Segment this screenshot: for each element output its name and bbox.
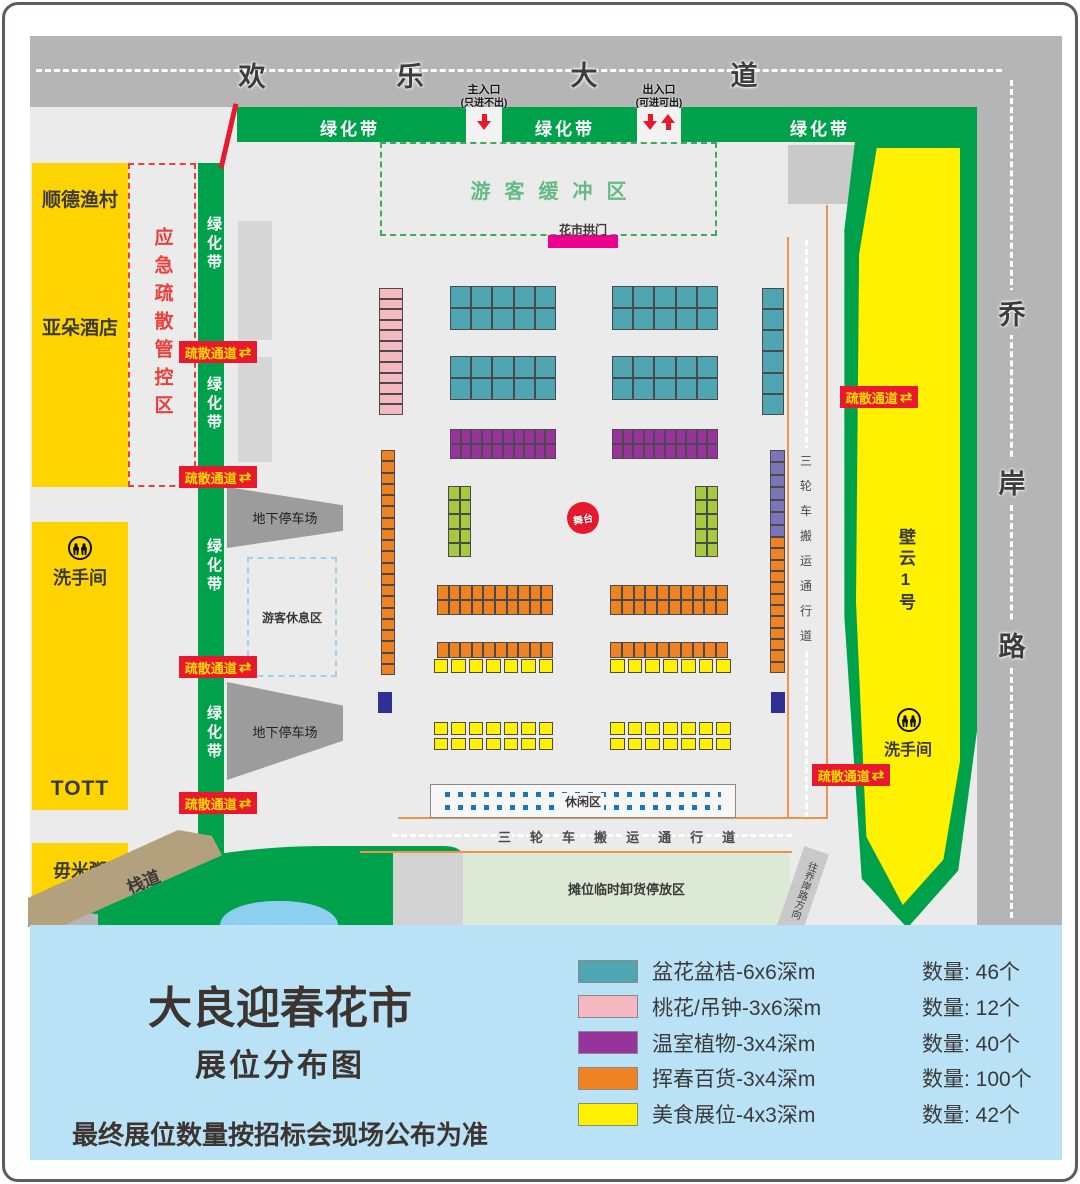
booth-cell bbox=[521, 659, 535, 673]
booth-block-potted bbox=[450, 286, 556, 330]
booth-cell bbox=[539, 722, 553, 735]
booth-cell bbox=[451, 659, 465, 673]
booth-cell bbox=[521, 722, 535, 735]
booth-cell bbox=[645, 722, 660, 735]
booth-cell bbox=[541, 585, 553, 600]
booth-cell bbox=[654, 308, 675, 330]
booth-cell bbox=[450, 286, 471, 308]
booth-cell bbox=[495, 585, 507, 600]
booth-cell bbox=[381, 529, 395, 540]
booth-cell bbox=[379, 351, 403, 362]
booth-cell bbox=[612, 308, 633, 330]
building-restroom-tott: 洗手间 TOTT bbox=[32, 522, 128, 810]
stage: 舞台 bbox=[567, 502, 599, 534]
booth-block-sundries bbox=[437, 585, 553, 615]
booth-cell bbox=[628, 659, 643, 673]
lane-label-char: 搬 bbox=[593, 827, 608, 846]
booth-cell bbox=[503, 429, 514, 444]
legend-item-qty: 数量: 12个 bbox=[922, 992, 1020, 1022]
booth-cell bbox=[448, 543, 460, 557]
booth-cell bbox=[434, 659, 448, 673]
booth-cell bbox=[379, 373, 403, 384]
booth-cell bbox=[379, 309, 403, 320]
booth-cell bbox=[707, 514, 719, 528]
booth-cell bbox=[695, 514, 707, 528]
booth-cell bbox=[535, 444, 546, 459]
legend-item: 美食展位-4x3深m数量: 42个 bbox=[578, 1102, 1048, 1126]
exit-up-arrow-icon bbox=[661, 114, 675, 130]
booth-cell bbox=[448, 486, 460, 500]
booth-cell bbox=[762, 351, 784, 372]
booth-block-greenhouse bbox=[450, 429, 556, 459]
booth-block-lime bbox=[695, 486, 718, 557]
parking-2-label: 地下停车场 bbox=[252, 722, 317, 741]
booth-cell bbox=[381, 461, 395, 472]
booth-cell bbox=[610, 642, 622, 658]
exit-entrance-title: 出入口 bbox=[616, 84, 702, 98]
booth-cell bbox=[460, 500, 472, 514]
booth-cell bbox=[504, 738, 518, 751]
booth-cell bbox=[707, 429, 718, 444]
booth-cell bbox=[504, 659, 518, 673]
booth-cell bbox=[381, 551, 395, 562]
booth-cell bbox=[503, 444, 514, 459]
booth-cell bbox=[681, 585, 693, 600]
booth-cell bbox=[681, 659, 696, 673]
booth-cell bbox=[657, 585, 669, 600]
building-label-shunde: 顺德渔村 bbox=[32, 185, 128, 212]
double-arrow-icon: ⇄ bbox=[900, 390, 913, 405]
booth-cell bbox=[460, 642, 472, 658]
booth-cell bbox=[633, 444, 644, 459]
legend-swatch bbox=[578, 960, 638, 983]
booth-cell bbox=[669, 642, 681, 658]
booth-cell bbox=[654, 378, 675, 400]
lane-label-char: 行 bbox=[689, 827, 704, 846]
booth-cell bbox=[693, 585, 705, 600]
green-block-bottom bbox=[360, 852, 393, 925]
booth-cell bbox=[669, 585, 681, 600]
booth-cell bbox=[686, 444, 697, 459]
booth-cell bbox=[654, 429, 665, 444]
buffer-zone-label: 游客缓冲区 bbox=[457, 175, 641, 204]
booth-cell bbox=[492, 429, 503, 444]
legend-item-label: 挥春百货-3x4深m bbox=[652, 1063, 922, 1093]
booth-cell bbox=[770, 628, 785, 639]
booth-cell bbox=[469, 659, 483, 673]
booth-cell bbox=[770, 662, 785, 673]
booth-cell bbox=[704, 585, 716, 600]
booth-cell bbox=[610, 600, 622, 615]
booth-cell bbox=[686, 429, 697, 444]
booth-cell bbox=[697, 308, 718, 330]
booth-cell bbox=[451, 738, 465, 751]
booth-cell bbox=[471, 378, 492, 400]
booth-cell bbox=[472, 585, 484, 600]
booth-cell bbox=[492, 308, 513, 330]
booth-cell bbox=[495, 642, 507, 658]
booth-block-sundries bbox=[610, 585, 728, 615]
exit-down-arrow-icon bbox=[643, 114, 657, 130]
building-label-yaduo: 亚朵酒店 bbox=[32, 313, 128, 340]
booth-block-food bbox=[610, 659, 731, 673]
booth-cell bbox=[657, 600, 669, 615]
booth-cell bbox=[460, 514, 472, 528]
booth-cell bbox=[770, 560, 785, 571]
booth-block-food bbox=[434, 722, 553, 750]
booth-cell bbox=[471, 308, 492, 330]
booth-cell bbox=[434, 722, 448, 735]
double-arrow-icon: ⇄ bbox=[239, 345, 252, 360]
booth-cell bbox=[514, 308, 535, 330]
booth-cell bbox=[379, 404, 403, 415]
booth-cell bbox=[770, 537, 785, 548]
booth-cell bbox=[654, 286, 675, 308]
booth-cell bbox=[707, 543, 719, 557]
booth-cell bbox=[381, 450, 395, 461]
booth-cell bbox=[681, 722, 696, 735]
legend-item-label: 桃花/吊钟-3x6深m bbox=[652, 992, 922, 1022]
booth-block-peach bbox=[379, 288, 403, 415]
visitor-rest-label: 游客休息区 bbox=[262, 609, 322, 626]
booth-cell bbox=[492, 286, 513, 308]
booth-cell bbox=[460, 486, 472, 500]
booth-cell bbox=[610, 585, 622, 600]
booth-cell bbox=[770, 548, 785, 559]
booth-cell bbox=[504, 722, 518, 735]
lane-label-char: 搬 bbox=[796, 523, 816, 548]
booth-cell bbox=[770, 639, 785, 650]
booth-cell bbox=[539, 738, 553, 751]
booth-cell bbox=[381, 630, 395, 641]
arch-label: 花市拱门 bbox=[538, 221, 628, 238]
booth-cell bbox=[612, 378, 633, 400]
booth-cell bbox=[460, 585, 472, 600]
lane-label-char: 车 bbox=[796, 498, 816, 523]
booth-block-potted bbox=[612, 286, 718, 330]
booth-cell bbox=[663, 659, 678, 673]
double-arrow-icon: ⇄ bbox=[872, 768, 885, 783]
booth-cell bbox=[448, 514, 460, 528]
legend-item: 挥春百货-3x4深m数量: 100个 bbox=[578, 1066, 1048, 1090]
orange-line-v1 bbox=[787, 237, 789, 818]
booth-cell bbox=[645, 642, 657, 658]
booth-cell bbox=[676, 429, 687, 444]
evacuation-badge-label: 疏散通道 bbox=[185, 658, 237, 677]
booth-cell bbox=[514, 356, 535, 378]
booth-cell bbox=[545, 444, 556, 459]
lane-label-char: 道 bbox=[796, 623, 816, 648]
exit-entrance-label: 出入口 (可进可出) bbox=[616, 84, 702, 110]
booth-cell bbox=[622, 642, 634, 658]
booth-cell bbox=[610, 659, 625, 673]
booth-cell bbox=[381, 540, 395, 551]
booth-cell bbox=[450, 444, 461, 459]
booth-cell bbox=[379, 362, 403, 373]
booth-cell bbox=[450, 308, 471, 330]
booth-cell bbox=[770, 525, 785, 537]
orange-line-h2 bbox=[360, 851, 792, 853]
booth-cell bbox=[545, 429, 556, 444]
booth-cell bbox=[681, 600, 693, 615]
booth-cell bbox=[541, 600, 553, 615]
lane-label-char: 三 bbox=[796, 448, 816, 473]
legend-swatch bbox=[578, 995, 638, 1018]
evacuation-badge-label: 疏散通道 bbox=[185, 343, 237, 362]
booth-cell bbox=[612, 444, 623, 459]
booth-cell bbox=[449, 600, 461, 615]
booth-cell bbox=[482, 444, 493, 459]
booth-cell bbox=[762, 288, 784, 309]
building-shunde-yacun: 顺德渔村 亚朵酒店 bbox=[32, 163, 128, 487]
booth-cell bbox=[697, 356, 718, 378]
booth-cell bbox=[716, 659, 731, 673]
booth-cell bbox=[381, 506, 395, 517]
booth-cell bbox=[665, 429, 676, 444]
booth-block-lime bbox=[448, 486, 471, 557]
booth-cell bbox=[379, 341, 403, 352]
booth-cell bbox=[697, 429, 708, 444]
booth-cell bbox=[676, 356, 697, 378]
booth-cell bbox=[381, 518, 395, 529]
legend-item-qty: 数量: 46个 bbox=[922, 956, 1020, 986]
booth-block-sundries bbox=[770, 537, 785, 673]
gray-building-2 bbox=[238, 357, 272, 462]
booth-cell bbox=[469, 738, 483, 751]
booth-cell bbox=[695, 543, 707, 557]
booth-cell bbox=[450, 356, 471, 378]
booth-cell bbox=[507, 600, 519, 615]
booth-cell bbox=[693, 642, 705, 658]
booth-cell bbox=[524, 429, 535, 444]
booth-cell bbox=[507, 642, 519, 658]
booth-block-potted bbox=[762, 288, 784, 415]
booth-cell bbox=[471, 286, 492, 308]
restroom-icon-right bbox=[897, 708, 921, 732]
booth-cell bbox=[530, 585, 542, 600]
booth-cell bbox=[695, 529, 707, 543]
booth-cell bbox=[695, 486, 707, 500]
orange-line-v2 bbox=[826, 205, 828, 818]
booth-cell bbox=[381, 641, 395, 652]
booth-cell bbox=[707, 529, 719, 543]
booth-cell bbox=[612, 429, 623, 444]
lane-label-char: 运 bbox=[625, 827, 640, 846]
booth-cell bbox=[612, 356, 633, 378]
legend-title: 大良迎春花市 bbox=[70, 972, 490, 1036]
evacuation-badge-label: 疏散通道 bbox=[818, 766, 870, 785]
booth-cell bbox=[681, 738, 696, 751]
booth-cell bbox=[634, 585, 646, 600]
booth-cell bbox=[762, 309, 784, 330]
booth-cell bbox=[770, 475, 785, 487]
booth-cell bbox=[676, 286, 697, 308]
restroom-label-left: 洗手间 bbox=[32, 564, 128, 590]
green-belt-label-vertical: 绿化带 bbox=[203, 216, 224, 273]
lane-label-char: 三 bbox=[497, 827, 512, 846]
booth-cell bbox=[770, 450, 785, 462]
booth-cell bbox=[518, 600, 530, 615]
exit-entrance-note: (可进可出) bbox=[616, 98, 702, 111]
main-entrance-label: 主入口 (只进不出) bbox=[441, 84, 527, 110]
booth-cell bbox=[524, 444, 535, 459]
lane-label-char: 轮 bbox=[529, 827, 544, 846]
gray-building-1 bbox=[238, 221, 272, 340]
booth-cell bbox=[521, 738, 535, 751]
booth-cell bbox=[514, 429, 525, 444]
booth-cell bbox=[697, 378, 718, 400]
evacuation-badge: 疏散通道⇄ bbox=[179, 341, 257, 363]
road-name-char: 道 bbox=[729, 54, 759, 93]
booth-cell bbox=[654, 356, 675, 378]
green-belt-label: 绿化带 bbox=[310, 115, 390, 140]
booth-cell bbox=[644, 429, 655, 444]
double-arrow-icon: ⇄ bbox=[239, 796, 252, 811]
legend-item-qty: 数量: 42个 bbox=[922, 1099, 1020, 1129]
booth-cell bbox=[530, 600, 542, 615]
booth-cell bbox=[379, 299, 403, 310]
booth-cell bbox=[471, 444, 482, 459]
booth-cell bbox=[634, 642, 646, 658]
legend-item: 桃花/吊钟-3x6深m数量: 12个 bbox=[578, 995, 1048, 1019]
booth-cell bbox=[379, 330, 403, 341]
green-belt-label-vertical: 绿化带 bbox=[203, 538, 224, 595]
booth-cell bbox=[716, 600, 728, 615]
lane-label-char: 轮 bbox=[796, 473, 816, 498]
booth-cell bbox=[623, 444, 634, 459]
booth-cell bbox=[610, 722, 625, 735]
booth-cell bbox=[622, 585, 634, 600]
unload-label: 摊位临时卸货停放区 bbox=[568, 879, 685, 898]
evacuation-badge: 疏散通道⇄ bbox=[179, 792, 257, 814]
booth-cell bbox=[633, 286, 654, 308]
legend-item-label: 美食展位-4x3深m bbox=[652, 1099, 922, 1129]
restroom-label-right: 洗手间 bbox=[868, 736, 948, 760]
booth-cell bbox=[770, 512, 785, 524]
lane-label-char: 通 bbox=[657, 827, 672, 846]
booth-cell bbox=[471, 356, 492, 378]
legend-note: 最终展位数量按招标会现场公布为准 bbox=[70, 1115, 490, 1152]
legend-item: 盆花盆桔-6x6深m数量: 46个 bbox=[578, 959, 1048, 983]
booth-cell bbox=[633, 378, 654, 400]
booth-cell bbox=[535, 429, 546, 444]
main-entrance-title: 主入口 bbox=[441, 84, 527, 98]
evacuation-badge: 疏散通道⇄ bbox=[179, 656, 257, 678]
booth-cell bbox=[460, 543, 472, 557]
lane-label-char: 车 bbox=[561, 827, 576, 846]
booth-cell bbox=[770, 571, 785, 582]
booth-cell bbox=[645, 600, 657, 615]
flower-market-map: 欢乐大道 乔岸路 绿化带绿化带绿化带 主入口 (只进不出) 出入口 (可进可出)… bbox=[0, 0, 1080, 1184]
road-name-char: 路 bbox=[996, 622, 1028, 667]
booth-cell bbox=[495, 600, 507, 615]
booth-cell bbox=[448, 529, 460, 543]
booth-cell bbox=[472, 642, 484, 658]
entrance-down-arrow-icon bbox=[477, 114, 491, 130]
booth-cell bbox=[644, 444, 655, 459]
top-road-centerline bbox=[36, 69, 1002, 72]
booth-cell bbox=[770, 605, 785, 616]
legend-item-label: 温室植物-3x4深m bbox=[652, 1028, 922, 1058]
booth-cell bbox=[434, 738, 448, 751]
road-name-char: 乐 bbox=[395, 55, 425, 94]
booth-cell bbox=[716, 642, 728, 658]
booth-cell bbox=[381, 484, 395, 495]
booth-cell bbox=[657, 642, 669, 658]
booth-cell bbox=[450, 378, 471, 400]
legend-subtitle: 展位分布图 bbox=[70, 1040, 490, 1085]
booth-cell bbox=[633, 356, 654, 378]
green-belt-label-vertical: 绿化带 bbox=[203, 376, 224, 433]
legend-swatch bbox=[578, 1031, 638, 1054]
booth-cell bbox=[518, 642, 530, 658]
booth-cell bbox=[461, 429, 472, 444]
booth-cell bbox=[381, 596, 395, 607]
lane-label-char: 行 bbox=[796, 598, 816, 623]
booth-cell bbox=[663, 722, 678, 735]
road-name-char: 大 bbox=[569, 54, 599, 93]
booth-cell bbox=[622, 600, 634, 615]
booth-cell bbox=[707, 486, 719, 500]
main-entrance-gap bbox=[466, 107, 502, 142]
booth-cell bbox=[448, 500, 460, 514]
booth-cell bbox=[770, 650, 785, 661]
booth-cell bbox=[633, 429, 644, 444]
booth-cell bbox=[654, 444, 665, 459]
booth-cell bbox=[541, 642, 553, 658]
booth-cell bbox=[770, 582, 785, 593]
booth-cell bbox=[514, 286, 535, 308]
booth-cell bbox=[381, 619, 395, 630]
booth-cell bbox=[770, 500, 785, 512]
evacuation-badge: 疏散通道⇄ bbox=[812, 764, 890, 786]
booth-block-sundries bbox=[437, 642, 553, 658]
booth-cell bbox=[492, 444, 503, 459]
booth-cell bbox=[514, 444, 525, 459]
legend-panel: 大良迎春花市 展位分布图 最终展位数量按招标会现场公布为准 盆花盆桔-6x6深m… bbox=[30, 925, 1062, 1160]
navy-marker bbox=[771, 692, 785, 713]
green-belt-label-vertical: 绿化带 bbox=[203, 705, 224, 762]
booth-cell bbox=[704, 642, 716, 658]
booth-cell bbox=[460, 529, 472, 543]
road-name-char: 乔 bbox=[996, 290, 1028, 335]
booth-cell bbox=[699, 722, 714, 735]
booth-cell bbox=[539, 659, 553, 673]
booth-cell bbox=[716, 738, 731, 751]
booth-block-slate bbox=[770, 450, 785, 537]
booth-cell bbox=[379, 320, 403, 331]
booth-cell bbox=[381, 473, 395, 484]
booth-cell bbox=[770, 462, 785, 474]
booth-cell bbox=[437, 642, 449, 658]
lane-label-char: 运 bbox=[796, 548, 816, 573]
main-entrance-note: (只进不出) bbox=[441, 98, 527, 111]
navy-marker bbox=[378, 692, 392, 713]
booth-cell bbox=[483, 642, 495, 658]
leisure-box: 休闲区 bbox=[430, 784, 736, 818]
evacuation-badge: 疏散通道⇄ bbox=[840, 386, 918, 408]
booth-cell bbox=[704, 600, 716, 615]
booth-cell bbox=[514, 378, 535, 400]
building-label-tott: TOTT bbox=[32, 777, 128, 801]
gray-block-bottom bbox=[393, 852, 463, 925]
green-belt-label: 绿化带 bbox=[525, 115, 605, 140]
booth-cell bbox=[535, 308, 556, 330]
legend-swatch bbox=[578, 1067, 638, 1090]
booth-cell bbox=[612, 286, 633, 308]
booth-cell bbox=[451, 722, 465, 735]
booth-cell bbox=[535, 356, 556, 378]
